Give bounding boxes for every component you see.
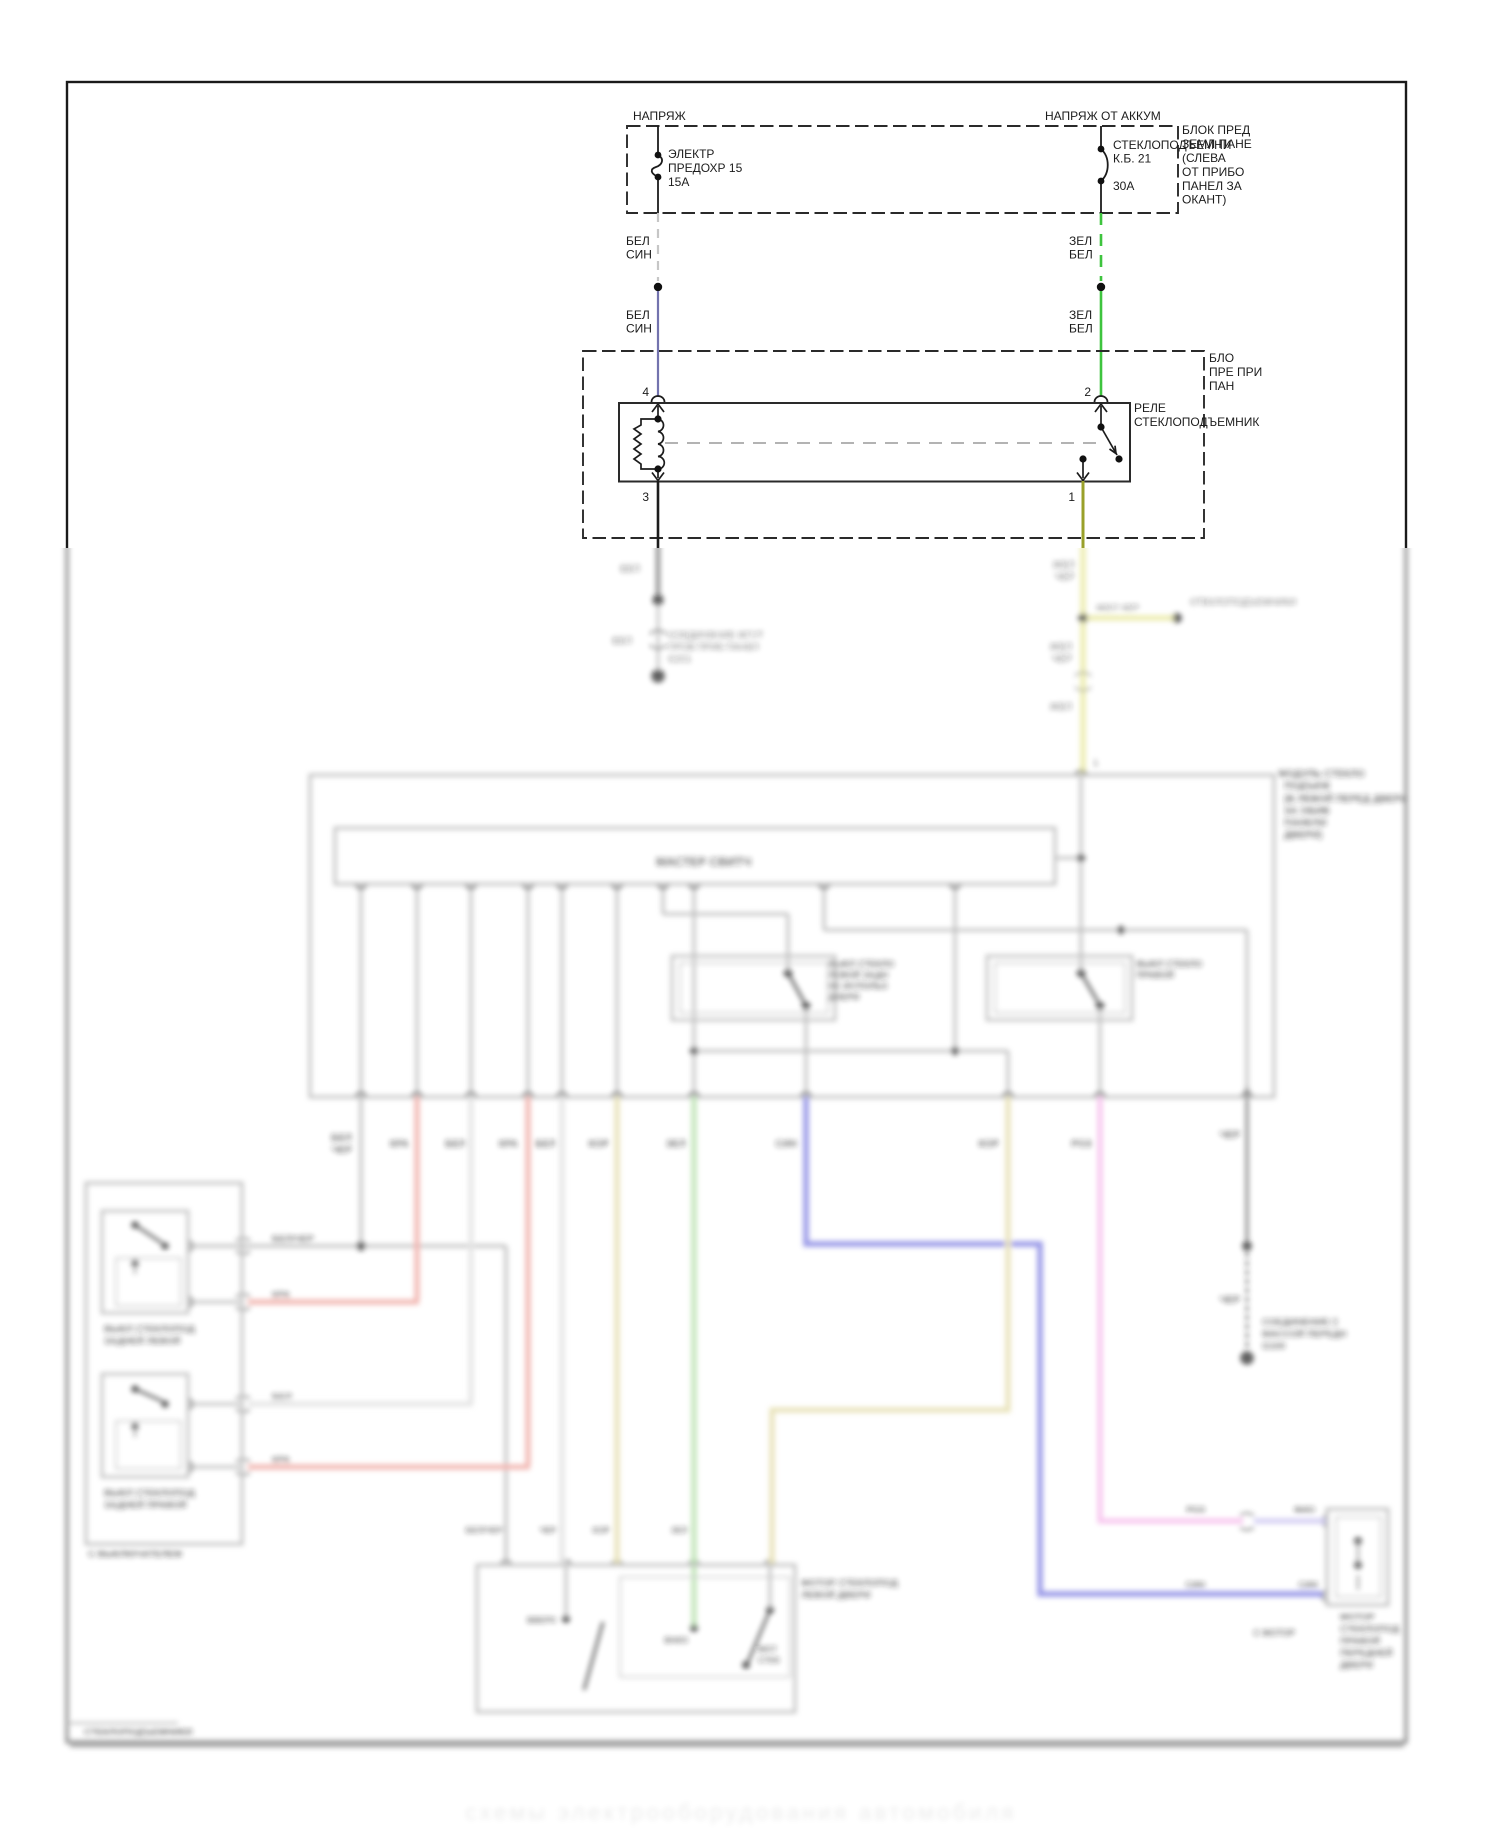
svg-text:МОДУЛЬ СТЕКЛО: МОДУЛЬ СТЕКЛО: [1278, 769, 1365, 780]
svg-text:НАПРЯЖ ОТ АККУМ: НАПРЯЖ ОТ АККУМ: [1045, 109, 1161, 123]
svg-text:15А: 15А: [668, 175, 689, 189]
svg-text:ВЫКЛ СТЕКЛО: ВЫКЛ СТЕКЛО: [1136, 959, 1202, 969]
svg-text:БЕЛ/ЧЕР: БЕЛ/ЧЕР: [272, 1234, 314, 1245]
svg-text:МОТОР СТЕКЛОПОД: МОТОР СТЕКЛОПОД: [801, 1578, 898, 1589]
svg-text:КРА: КРА: [390, 1139, 409, 1150]
svg-text:ЗАДНЕЙ ЛЕВОЙ: ЗАДНЕЙ ЛЕВОЙ: [104, 1335, 181, 1347]
svg-text:ЖЕЛ: ЖЕЛ: [1050, 702, 1072, 713]
svg-text:СТЕКЛОПОДЪЕМНИКИ: СТЕКЛОПОДЪЕМНИКИ: [1190, 597, 1296, 608]
svg-text:ЗЕЛ: ЗЕЛ: [1069, 234, 1092, 248]
svg-text:СИН: СИН: [626, 322, 652, 336]
svg-text:(СЛЕВА: (СЛЕВА: [1182, 151, 1226, 165]
svg-text:ЖЕЛ ЧЕР: ЖЕЛ ЧЕР: [1096, 603, 1139, 614]
svg-text:СИН: СИН: [626, 248, 652, 262]
svg-text:КОР: КОР: [593, 1525, 611, 1535]
svg-text:(В ЛЕВОЙ ПЕРЕД ДВЕРИ: (В ЛЕВОЙ ПЕРЕД ДВЕРИ: [1284, 792, 1408, 805]
svg-text:ДВЕРИ): ДВЕРИ): [1284, 830, 1322, 841]
svg-text:ПРЕДОХР 15: ПРЕДОХР 15: [668, 161, 743, 175]
svg-text:ВВЕРХ: ВВЕРХ: [527, 1615, 556, 1625]
svg-text:СИН: СИН: [775, 1139, 797, 1150]
svg-text:ВЫКЛ СТЕКЛОПОД: ВЫКЛ СТЕКЛОПОД: [104, 1324, 195, 1335]
svg-text:СИН: СИН: [1299, 1580, 1318, 1590]
svg-text:БЕЛ: БЕЛ: [272, 1392, 292, 1403]
svg-text:ЗЕМЛ ПАНЕ: ЗЕМЛ ПАНЕ: [1182, 137, 1252, 151]
svg-text:С МОТОР: С МОТОР: [1253, 1628, 1295, 1638]
svg-text:ЧЕР: ЧЕР: [1052, 654, 1072, 665]
svg-text:КРА: КРА: [499, 1139, 518, 1150]
svg-text:БЕЛ: БЕЛ: [535, 1139, 556, 1150]
svg-text:ПОДЪЕМ: ПОДЪЕМ: [1284, 781, 1330, 792]
svg-text:ОТ ПРИБО: ОТ ПРИБО: [1182, 165, 1244, 179]
svg-text:ПРАВОЙ: ПРАВОЙ: [1136, 969, 1174, 980]
svg-text:БЕЛ: БЕЛ: [445, 1139, 466, 1150]
svg-text:БЕЛ: БЕЛ: [331, 1133, 352, 1144]
svg-text:СОЕДИНЕНИЕ ЖГУТ: СОЕДИНЕНИЕ ЖГУТ: [668, 630, 763, 641]
svg-text:ПРЕ ПРИ: ПРЕ ПРИ: [1209, 365, 1262, 379]
svg-text:1: 1: [1068, 490, 1075, 504]
svg-text:КОР: КОР: [588, 1139, 609, 1150]
svg-text:БЕЛ: БЕЛ: [626, 234, 650, 248]
svg-text:БЕЛ: БЕЛ: [1069, 248, 1093, 262]
svg-text:ПРОВ ПРИБ ПАНЕЛ: ПРОВ ПРИБ ПАНЕЛ: [668, 642, 759, 653]
svg-text:СТЕКЛОПОДЪЕМНИК: СТЕКЛОПОДЪЕМНИК: [1134, 415, 1259, 429]
svg-text:МАССОЙ ПЕРЕДН: МАССОЙ ПЕРЕДН: [1262, 1328, 1346, 1340]
svg-text:БЕЛ: БЕЛ: [620, 564, 640, 575]
svg-text:ДВЕРИ: ДВЕРИ: [828, 992, 859, 1002]
svg-text:ОКАНТ): ОКАНТ): [1182, 193, 1226, 207]
svg-text:ЗА ОБИВ: ЗА ОБИВ: [1284, 806, 1330, 817]
svg-text:К.Б. 21: К.Б. 21: [1113, 152, 1152, 166]
svg-text:ПАН: ПАН: [1209, 379, 1234, 393]
svg-text:МОТОР: МОТОР: [1340, 1612, 1375, 1623]
svg-text:ЧЕР: ЧЕР: [1220, 1295, 1241, 1306]
svg-text:ЧЕР: ЧЕР: [1220, 1130, 1241, 1141]
svg-text:ПРАВОЙ: ПРАВОЙ: [1340, 1635, 1380, 1647]
svg-text:РЕЛЕ: РЕЛЕ: [1134, 401, 1166, 415]
svg-text:ВЫКЛ СТЕКЛО: ВЫКЛ СТЕКЛО: [828, 959, 894, 969]
svg-text:КРА: КРА: [272, 1290, 290, 1301]
svg-text:МОТ: МОТ: [758, 1644, 778, 1654]
svg-text:ПЕРЕДНЕЙ: ПЕРЕДНЕЙ: [1340, 1647, 1393, 1659]
svg-text:ВНИЗ: ВНИЗ: [664, 1635, 688, 1645]
svg-text:БЕЛ/ЧЕР: БЕЛ/ЧЕР: [466, 1525, 504, 1535]
svg-text:ЗЕЛ: ЗЕЛ: [666, 1139, 686, 1150]
svg-text:ЖЕЛ: ЖЕЛ: [1053, 560, 1075, 571]
svg-text:схемы электрооборудования авто: схемы электрооборудования автомобиля: [465, 1799, 1017, 1825]
svg-text:РОЗ: РОЗ: [1186, 1505, 1205, 1515]
svg-text:ФИО: ФИО: [1294, 1505, 1315, 1515]
svg-text:2: 2: [1084, 385, 1091, 399]
svg-text:4: 4: [642, 385, 649, 399]
svg-text:ЧЕР: ЧЕР: [540, 1525, 558, 1535]
svg-text:БЛО: БЛО: [1209, 351, 1234, 365]
svg-text:ПАНЕЛ ЗА: ПАНЕЛ ЗА: [1182, 179, 1242, 193]
svg-text:С ВЫКЛЮЧАТЕЛЕМ: С ВЫКЛЮЧАТЕЛЕМ: [88, 1549, 182, 1560]
svg-text:БЛОК ПРЕД: БЛОК ПРЕД: [1182, 123, 1250, 137]
svg-text:30А: 30А: [1113, 179, 1134, 193]
svg-text:ЛЕВОЙ ЗАДН: ЛЕВОЙ ЗАДН: [828, 969, 888, 980]
svg-text:СТЕКЛОПОДЪЕМНИКИ: СТЕКЛОПОДЪЕМНИКИ: [84, 1727, 192, 1738]
svg-text:3: 3: [642, 490, 649, 504]
svg-text:ЧЕР: ЧЕР: [332, 1145, 353, 1156]
svg-text:G100: G100: [1262, 1341, 1285, 1352]
svg-text:МАСТЕР СВИТЧ: МАСТЕР СВИТЧ: [656, 855, 751, 869]
svg-text:НАПРЯЖ: НАПРЯЖ: [633, 109, 686, 123]
svg-text:ЖЕЛ: ЖЕЛ: [1050, 642, 1072, 653]
svg-text:БЕЛ: БЕЛ: [1069, 322, 1093, 336]
svg-text:ЗЕЛ: ЗЕЛ: [1069, 308, 1092, 322]
svg-text:СИН: СИН: [1186, 1580, 1205, 1590]
svg-text:КОР: КОР: [978, 1139, 999, 1150]
svg-text:1: 1: [1093, 758, 1098, 769]
svg-text:БЕЛ: БЕЛ: [626, 308, 650, 322]
svg-text:ЭЛЕКТР: ЭЛЕКТР: [668, 147, 714, 161]
svg-text:СТЕК: СТЕК: [758, 1655, 781, 1665]
svg-text:СТЕКЛОПОД: СТЕКЛОПОД: [1340, 1624, 1400, 1635]
svg-text:КРА: КРА: [272, 1455, 290, 1466]
svg-text:РОЗ: РОЗ: [1071, 1139, 1092, 1150]
svg-text:ЛЕВОЙ ДВЕРИ: ЛЕВОЙ ДВЕРИ: [801, 1589, 871, 1601]
svg-text:БЕЛ: БЕЛ: [612, 636, 632, 647]
svg-text:ПАНЕЛИ: ПАНЕЛИ: [1284, 818, 1327, 829]
svg-text:ВЫКЛ СТЕКЛОПОД: ВЫКЛ СТЕКЛОПОД: [104, 1488, 195, 1499]
svg-text:СОЕДИНЕНИЕ С: СОЕДИНЕНИЕ С: [1262, 1317, 1339, 1328]
svg-text:НЕ ИСПОЛЬЗ: НЕ ИСПОЛЬЗ: [828, 981, 888, 991]
svg-text:ДВЕРИ: ДВЕРИ: [1340, 1660, 1373, 1671]
svg-text:ЧЕР: ЧЕР: [1055, 572, 1075, 583]
svg-text:G201: G201: [668, 654, 691, 665]
svg-text:ЗАДНЕЙ ПРАВОЙ: ЗАДНЕЙ ПРАВОЙ: [104, 1499, 187, 1511]
svg-text:ЗЕЛ: ЗЕЛ: [671, 1525, 688, 1535]
